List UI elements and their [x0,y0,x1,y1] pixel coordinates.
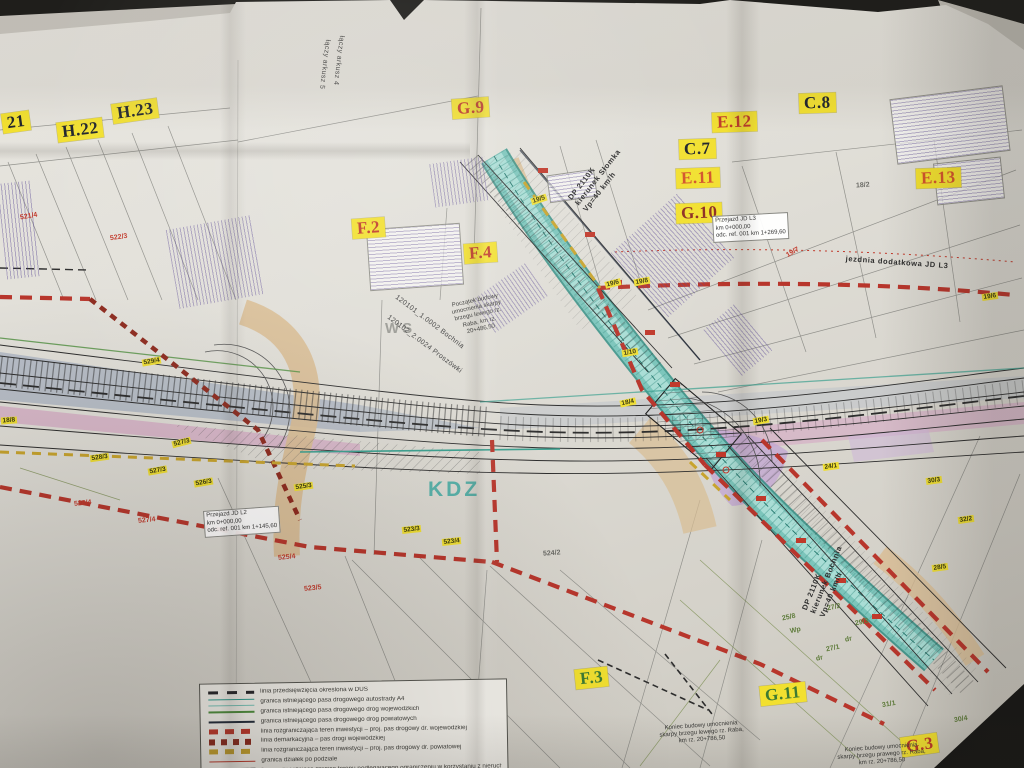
parcel-tag: 523/4 [442,537,462,546]
parcel-tag: 526/3 [194,477,214,487]
parcel-number: 27/1 [825,644,840,654]
parcel-tag: 24/1 [823,462,839,471]
parcel-tag: 19/5 [530,194,547,206]
parcel-number: 523/5 [304,584,322,593]
grid-reference-label: G.11 [759,682,806,706]
road-name-label: DP 2110Kkierunek BochniaVp=40 km/h [800,541,853,618]
construction-annotation: Koniec budowy umocnienia skarpy brzegu l… [655,720,748,748]
parcel-tag: 28/5 [932,563,948,572]
chainage-note-box: Przejazd JD L2km 0+000,00odc. ref. 001 k… [203,506,281,538]
parcel-tag: 527/3 [171,437,191,449]
parcel-tag: 529/4 [142,356,162,366]
grid-reference-label: G.9 [451,97,490,119]
parcel-tag: 527/3 [148,465,168,475]
legend-label: linia rozgraniczająca teren inwestycji –… [261,725,467,735]
parcel-tag: 525/3 [294,482,314,492]
parcel-number: 19/7 [785,246,800,259]
paper-sheet: 21H.22H.23G.9E.12C.8C.7E.11E.13G.10F.2F.… [0,0,1024,768]
construction-annotation: Początek budowy umocnienia skarpy brzegu… [446,292,510,339]
road-name-label: DP 2110Kkierunek SłomkaVp=40 km/h [566,142,630,213]
parcel-number: 527/4 [138,516,156,525]
parcel-number: 18/2 [856,182,870,190]
parcel-tag: 19/8 [633,277,650,287]
grid-reference-label: H.23 [111,98,160,124]
parcel-number: dr [844,635,852,643]
parcel-number: Wp [789,626,801,635]
legend-label: linia przedsięwzięcia określona w DUŚ [260,687,368,695]
parcel-number: dr [815,654,823,662]
parcel-tag: 32/2 [958,515,974,524]
parcel-number: 521/4 [20,212,38,222]
parcel-number: 30/4 [953,715,968,724]
zoning-code-label: KDZ [428,478,480,502]
legend-swatch [209,738,255,745]
grid-reference-label: 21 [1,110,31,134]
construction-annotation: Koniec budowy umocnienia skarpy brzegu p… [835,742,928,768]
grid-reference-label: E.12 [712,111,757,132]
legend-label: granica istniejącego pasa drogowego dróg… [261,716,417,725]
legend-label: linia demarkacyjna – pas drogi wojewódzk… [261,736,385,745]
grid-reference-label: F.3 [574,666,609,689]
chainage-note-box: Przejazd JD L3km 0+000,00odc. ref. 001 k… [712,212,789,242]
parcel-number: 31/1 [881,700,896,709]
legend-label: granica działek po podziale [261,756,337,764]
parcel-number: 29/3 [854,618,869,628]
grid-reference-label: H.22 [56,117,105,142]
parcel-number: 525/4 [278,553,296,562]
parcel-number: 524/2 [543,549,561,557]
grid-reference-label: C.8 [799,92,836,113]
parcel-tag: 30/3 [926,476,942,485]
legend-swatch [209,721,255,724]
legend-swatch [208,699,254,707]
parcel-tag: 19/6 [604,278,621,289]
legend-label: linia rozgraniczająca teren inwestycji –… [261,744,461,754]
grid-reference-label: E.13 [916,167,961,188]
grid-reference-label: F.2 [351,217,385,239]
grid-reference-label: E.11 [676,167,720,188]
grid-reference-label: C.7 [679,138,716,159]
map-legend: linia przedsięwzięcia określona w DUŚ gr… [199,678,509,768]
photographed-site-plan: 21H.22H.23G.9E.12C.8C.7E.11E.13G.10F.2F.… [0,0,1024,768]
parcel-tag: 1/10 [621,348,638,358]
road-name-label: jezdnia dodatkowa JD L3 [845,254,948,271]
rotated-text-label: łączy arkusz 5 [318,39,331,89]
legend-label: granica istniejącego pasa drogowego auto… [260,696,404,705]
grid-reference-label: F.4 [463,242,497,264]
parcel-number: 522/3 [110,233,128,242]
legend-swatch [208,691,254,695]
rotated-text-label: łączy arkusz 4 [332,35,345,85]
legend-swatch [209,749,255,755]
parcel-tag: 19/6 [982,292,998,301]
legend-swatch [209,760,255,762]
legend-swatch [208,711,254,714]
parcel-number: 25/8 [781,613,796,623]
parcel-tag: 19/3 [752,416,769,426]
legend-label: granica istniejącego pasa drogowego dróg… [260,706,419,715]
parcel-tag: 18/8 [1,416,17,424]
parcel-tag: 523/3 [402,525,422,534]
parcel-number: 528/4 [74,499,92,508]
legend-label: linia wyznaczająca granice terenu podleg… [261,763,501,768]
parcel-tag: 18/4 [619,397,636,407]
parcel-tag: 528/3 [90,453,110,463]
legend-swatch [209,729,255,735]
